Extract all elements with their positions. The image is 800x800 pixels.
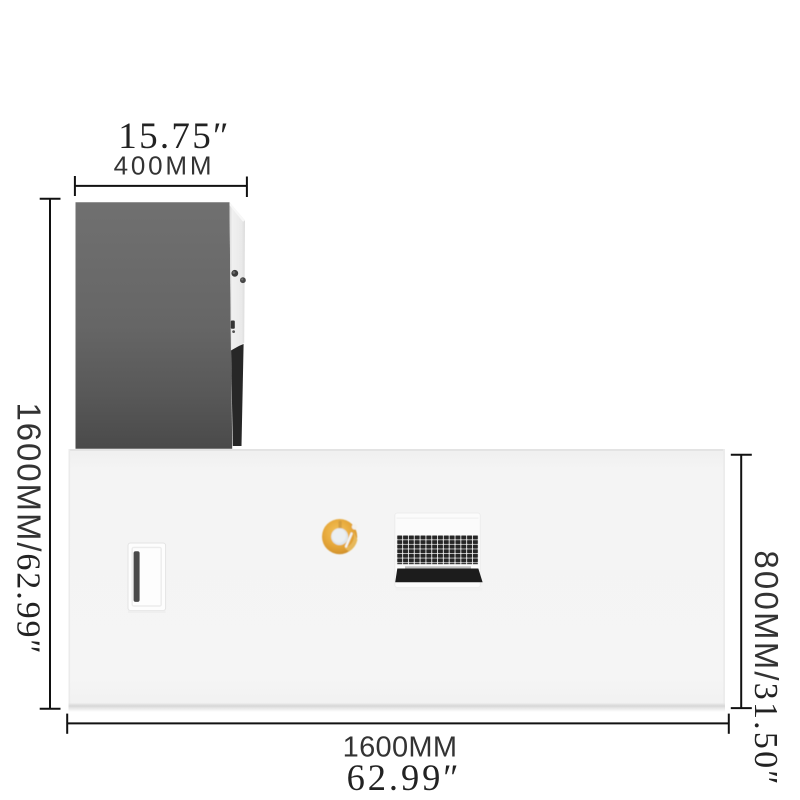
svg-text:1600MM/62.99″: 1600MM/62.99″ (10, 403, 48, 656)
svg-text:800MM/31.50″: 800MM/31.50″ (747, 550, 785, 786)
svg-text:400MM: 400MM (114, 150, 215, 180)
svg-text:62.99″: 62.99″ (347, 757, 462, 798)
